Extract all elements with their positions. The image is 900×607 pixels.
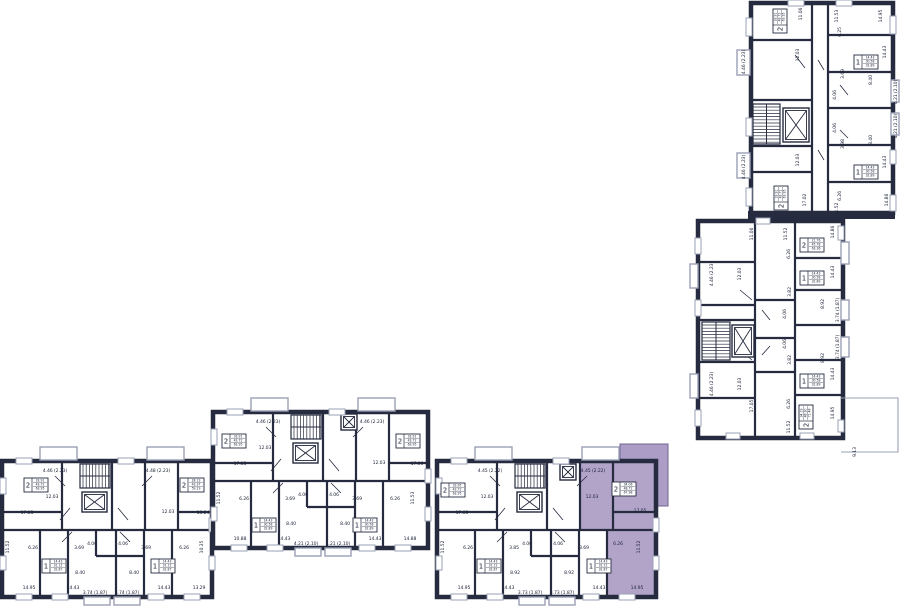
area-label: 12.03: [795, 48, 801, 61]
area-label: 6.26: [463, 545, 473, 551]
apartment-area-value: 63.95: [453, 492, 462, 496]
apartment-info-box[interactable]: 233.9143.7263.95: [774, 186, 788, 210]
window-mark: [231, 545, 247, 551]
apartment-info-box[interactable]: 234.1948.3071.48: [799, 405, 813, 429]
window-mark: [695, 238, 701, 254]
area-label: 14.43: [882, 155, 888, 168]
area-label: 14.43: [278, 536, 291, 542]
apartment-area-value: 32.89: [812, 280, 821, 284]
elevator-icon: [341, 414, 357, 430]
apartment-info-box[interactable]: 221.7645.7863.36: [800, 238, 824, 252]
window-mark: [425, 469, 431, 483]
stairs-icon: [753, 104, 780, 144]
window-mark: [836, 0, 852, 6]
area-label: 6.26: [179, 545, 189, 551]
area-label: 12.03: [481, 494, 494, 500]
area-label: 14.86: [884, 193, 890, 206]
apartment-area-value: 63.95: [783, 190, 787, 199]
area-label: 6.26: [613, 541, 623, 547]
area-label: 12.03: [795, 153, 801, 166]
window-mark: [211, 507, 217, 521]
window-mark: [890, 150, 896, 164]
window-mark: [451, 594, 467, 600]
window-mark: [425, 507, 431, 521]
window-mark: [890, 195, 896, 211]
apartment-area-value: 32.89: [264, 527, 273, 531]
area-label: 11.53: [834, 9, 840, 22]
area-label: 8.40: [75, 570, 85, 576]
apartment-area-value: 32.87: [54, 568, 63, 572]
apartment-rooms-count: 2: [802, 242, 806, 250]
balcony: [325, 548, 351, 556]
apartment-area-value: 63.95: [408, 443, 417, 447]
area-label: 14.43: [67, 585, 80, 591]
area-label: 4.46 (2.23): [256, 419, 281, 425]
building-section-bottom-left: 4.46 (2.23)4.48 (2.23)12.0312.0317.0513.…: [0, 447, 215, 605]
stairs-icon: [80, 464, 110, 488]
area-label: 14.43: [882, 45, 888, 58]
apartment-info-box[interactable]: 114.4331.1232.87: [477, 559, 501, 573]
area-label: 3.73 (1.87): [550, 590, 575, 596]
window-mark: [209, 556, 215, 570]
area-label: 11.52: [783, 227, 789, 240]
area-label: 17.05: [21, 510, 34, 516]
area-label: 9.13: [852, 447, 858, 457]
area-label: 12.03: [259, 445, 272, 451]
apartment-rooms-count: 2: [398, 438, 402, 446]
window-mark: [148, 594, 164, 600]
window-mark: [487, 594, 503, 600]
stairs-icon: [515, 464, 545, 488]
balcony: [841, 300, 849, 320]
area-label: 14.95: [878, 9, 884, 22]
area-label: 8.92: [820, 353, 826, 363]
building-section-middle-right: 11.0611.5214.866.264.46 (2.23)12.0314.43…: [690, 218, 898, 457]
area-label: 13.29: [193, 585, 206, 591]
area-label: 3.74 (1.87): [835, 334, 841, 359]
apartment-rooms-count: 1: [802, 378, 806, 386]
selected-apartment-info-box[interactable]: 234.0648.7267.98: [612, 482, 636, 496]
area-label: 14.43: [830, 367, 836, 380]
apartment-area-value: 63.36: [812, 247, 821, 251]
window-mark: [788, 0, 804, 6]
stairs-icon: [702, 322, 730, 360]
window-mark: [746, 118, 752, 136]
window-mark: [395, 545, 411, 551]
area-label: 12.03: [373, 460, 386, 466]
balcony: [841, 242, 849, 264]
area-label: 6.26: [786, 399, 792, 409]
area-label: 4.45 (2.22): [581, 468, 606, 474]
area-label: 8.40: [286, 521, 296, 527]
apartment-area-value: 63.95: [36, 487, 45, 491]
area-label: 10.88: [234, 536, 247, 542]
apartment-info-box[interactable]: 114.4330.5832.89: [800, 374, 824, 388]
apartment-area-value: 32.89: [866, 64, 875, 68]
window-mark: [451, 458, 467, 464]
apartment-area-value: 63.95: [782, 13, 786, 22]
area-label: 14.95: [830, 406, 836, 419]
apartment-info-box[interactable]: 228.1343.3759.19: [180, 478, 204, 492]
area-label: 8.92: [820, 299, 826, 309]
balcony: [40, 447, 77, 460]
area-label: 14.43: [830, 265, 836, 278]
area-label: 4.48 (2.23): [146, 468, 171, 474]
elevator-icon: [82, 492, 107, 512]
area-label: 4.06: [118, 541, 128, 547]
area-label: 8.40: [129, 570, 139, 576]
area-label: 14.43: [502, 585, 515, 591]
apartment-info-box[interactable]: 233.9143.7263.95: [773, 9, 787, 33]
balcony: [84, 597, 110, 605]
area-label: 3.69: [352, 496, 362, 502]
area-label: 17.06: [411, 461, 424, 467]
window-mark: [211, 429, 217, 445]
area-label: 8.40: [868, 135, 874, 145]
elevator-icon: [293, 443, 318, 463]
area-label: 12.03: [46, 494, 59, 500]
area-label: 6.26: [239, 496, 249, 502]
apartment-rooms-count: 2: [443, 487, 447, 495]
apartment-info-box[interactable]: 114.4330.5832.89: [854, 55, 878, 69]
area-label: 4.46 (2.23): [741, 154, 747, 179]
window-mark: [890, 16, 896, 34]
apartment-info-box[interactable]: 114.4331.1232.87: [151, 559, 175, 573]
area-label: 17.05: [456, 510, 469, 516]
window-mark: [329, 409, 345, 415]
window-mark: [653, 518, 659, 532]
area-label: 3.69: [141, 545, 151, 551]
window-mark: [583, 594, 599, 600]
apartment-rooms-count: 2: [224, 438, 228, 446]
window-mark: [118, 458, 134, 464]
window-mark: [436, 556, 442, 570]
window-mark: [0, 478, 6, 494]
elevator-icon: [560, 464, 576, 480]
area-label: 11.06: [798, 7, 804, 20]
area-label: 12.03: [737, 377, 743, 390]
window-mark: [553, 458, 569, 464]
balcony: [690, 264, 698, 288]
area-label: 11.52: [636, 540, 642, 553]
area-label: 3.82: [787, 287, 793, 297]
area-label: 3.69: [840, 69, 846, 79]
apartment-rooms-count: 1: [355, 522, 359, 530]
window-mark: [16, 594, 32, 600]
area-label: 4.45 (2.22): [478, 468, 503, 474]
apartment-area-value: 32.87: [599, 568, 608, 572]
area-label: 11.52: [786, 420, 792, 433]
window-mark: [227, 409, 243, 415]
area-label: 3.69: [285, 496, 295, 502]
apartment-rooms-count: 2: [777, 27, 785, 31]
apartment-rooms-count: 1: [254, 522, 258, 530]
area-label: 11.53: [410, 491, 416, 504]
area-label: 17.05: [634, 508, 647, 514]
apartment-area-value: 32.89: [365, 527, 374, 531]
area-label: 4.46 (2.23): [741, 49, 747, 74]
apartment-area-value: 59.19: [192, 487, 201, 491]
area-label: 4.46 (2.23): [709, 261, 715, 286]
apartment-rooms-count: 1: [802, 275, 806, 283]
area-label: 3.98: [840, 139, 846, 149]
window-mark: [838, 420, 844, 432]
area-label: 3.74 (1.87): [835, 297, 841, 322]
area-label: 3.73 (1.87): [518, 590, 543, 596]
area-label: 4.21 (2.10): [294, 541, 319, 547]
area-label: 6.26: [28, 545, 38, 551]
area-label: 11.06: [749, 227, 755, 240]
area-label: 3.74 (1.87): [83, 590, 108, 596]
area-label: 4.21 (2.10): [326, 541, 351, 547]
window-mark: [726, 433, 740, 439]
apartment-area-value: 32.89: [866, 174, 875, 178]
area-label: 6.26: [837, 191, 843, 201]
elevator-icon: [517, 492, 542, 512]
apartment-info-box[interactable]: 114.4330.5832.89: [800, 271, 824, 285]
area-label: 3.69: [579, 545, 589, 551]
area-label: 6.26: [390, 496, 400, 502]
area-label: 4.06: [298, 492, 308, 498]
area-label: 4.06: [522, 541, 532, 547]
area-label: 14.95: [631, 585, 644, 591]
building-section-top-right: 11.0611.5314.9512.036.2514.433.698.404.2…: [737, 0, 899, 219]
area-label: 14.86: [830, 225, 836, 238]
apartment-area-value: 67.98: [624, 491, 633, 495]
window-mark: [695, 410, 701, 426]
floorplan-canvas: 11.0611.5314.9512.036.2514.433.698.404.2…: [0, 0, 900, 607]
window-mark: [746, 18, 752, 36]
window-mark: [800, 433, 814, 439]
area-label: 13.24: [197, 510, 210, 516]
apartment-area-value: 32.89: [812, 383, 821, 387]
apartment-rooms-count: 1: [589, 563, 593, 571]
elevator-icon: [732, 325, 754, 357]
area-label: 11.52: [440, 540, 446, 553]
apartment-rooms-count: 1: [44, 563, 48, 571]
window-mark: [838, 226, 844, 240]
apartment-info-box[interactable]: 233.9143.7263.95: [222, 434, 246, 448]
apartment-info-box[interactable]: 114.4330.5832.89: [854, 165, 878, 179]
area-label: 4.46 (2.23): [360, 419, 385, 425]
apartment-rooms-count: 1: [856, 59, 860, 67]
area-label: 4.06: [87, 541, 97, 547]
window-mark: [695, 300, 701, 316]
area-label: 14.43: [593, 585, 606, 591]
area-label: 6.25: [837, 27, 843, 37]
apartment-rooms-count: 1: [153, 563, 157, 571]
balcony: [549, 597, 575, 605]
window-mark: [359, 545, 375, 551]
apartment-rooms-count: 2: [182, 482, 186, 490]
apartment-info-box[interactable]: 114.4331.1232.87: [42, 559, 66, 573]
apartment-rooms-count: 2: [778, 204, 786, 208]
balcony: [147, 447, 184, 460]
area-label: 10.35: [199, 540, 205, 553]
elevator-icon: [783, 108, 809, 142]
balcony: [841, 337, 849, 357]
area-label: 4.21 (2.10): [893, 113, 899, 138]
apartment-rooms-count: 2: [614, 486, 618, 494]
area-label: 4.06: [553, 541, 563, 547]
window-mark: [184, 594, 200, 600]
area-label: 4.06: [782, 309, 788, 319]
area-label: 14.88: [404, 536, 417, 542]
balcony: [251, 398, 288, 411]
balcony: [519, 597, 545, 605]
area-label: 12.03: [162, 509, 175, 515]
window-mark: [52, 594, 68, 600]
building-section-bottom-right: 4.45 (2.22)4.45 (2.22)12.0312.0317.0517.…: [436, 444, 668, 605]
area-label: 4.06: [832, 90, 838, 100]
apartment-area-value: 71.48: [808, 409, 812, 418]
window-mark: [16, 458, 32, 464]
area-label: 14.95: [458, 585, 471, 591]
area-label: 14.43: [369, 536, 382, 542]
terrace-outline: [841, 398, 898, 452]
area-label: 4.06: [832, 123, 838, 133]
area-label: 8.92: [564, 570, 574, 576]
apartment-info-box[interactable]: 233.9143.7263.95: [24, 478, 48, 492]
area-label: 14.43: [158, 585, 171, 591]
balcony: [358, 398, 395, 411]
building-section-bottom-middle: 4.46 (2.23)4.46 (2.23)12.0312.0317.0517.…: [211, 398, 431, 556]
balcony: [114, 597, 140, 605]
apartment-area-value: 32.87: [489, 568, 498, 572]
apartment-rooms-count: 1: [856, 169, 860, 177]
area-label: 11.52: [216, 491, 222, 504]
area-label: 12.03: [737, 267, 743, 280]
area-label: 11.52: [5, 540, 11, 553]
area-label: 3.74 (1.87): [115, 590, 140, 596]
apartment-area-value: 32.87: [163, 568, 172, 572]
area-label: 12.03: [586, 494, 599, 500]
area-label: 4.06: [329, 492, 339, 498]
area-label: 17.05: [749, 399, 755, 412]
area-label: 8.40: [340, 521, 350, 527]
area-label: 8.40: [868, 75, 874, 85]
area-label: 8.92: [510, 570, 520, 576]
balcony: [295, 548, 321, 556]
balcony: [690, 374, 698, 398]
apartment-info-box[interactable]: 233.9543.7263.95: [441, 483, 465, 497]
area-label: 3.82: [787, 355, 793, 365]
balcony: [582, 447, 619, 460]
apartment-rooms-count: 2: [26, 482, 30, 490]
apartment-rooms-count: 1: [479, 563, 483, 571]
balcony: [475, 447, 512, 460]
stairs-icon: [291, 415, 321, 439]
area-label: 11.52: [834, 202, 840, 215]
area-label: 17.02: [802, 193, 808, 206]
window-mark: [756, 218, 770, 224]
window-mark: [267, 545, 283, 551]
apartment-info-box[interactable]: 114.4330.5832.89: [252, 518, 276, 532]
apartment-info-box[interactable]: 114.4330.5832.89: [353, 518, 377, 532]
apartment-info-box[interactable]: 114.4331.1232.87: [587, 559, 611, 573]
area-label: 3.69: [74, 545, 84, 551]
area-label: 4.21 (2.10): [893, 79, 899, 104]
area-label: 4.46 (2.23): [709, 371, 715, 396]
window-mark: [653, 556, 659, 570]
window-mark: [619, 594, 635, 600]
floorplan-page: 11.0611.5314.9512.036.2514.433.698.404.2…: [0, 0, 900, 607]
apartment-rooms-count: 2: [803, 423, 811, 427]
window-mark: [746, 188, 752, 206]
area-label: 6.26: [786, 249, 792, 259]
apartment-info-box[interactable]: 233.9143.7263.95: [396, 434, 420, 448]
area-label: 14.95: [23, 585, 36, 591]
apartment-area-value: 63.95: [234, 443, 243, 447]
area-label: 4.06: [782, 339, 788, 349]
area-label: 3.85: [509, 545, 519, 551]
area-label: 4.46 (2.23): [43, 468, 68, 474]
area-label: 17.05: [234, 461, 247, 467]
window-mark: [0, 556, 6, 570]
